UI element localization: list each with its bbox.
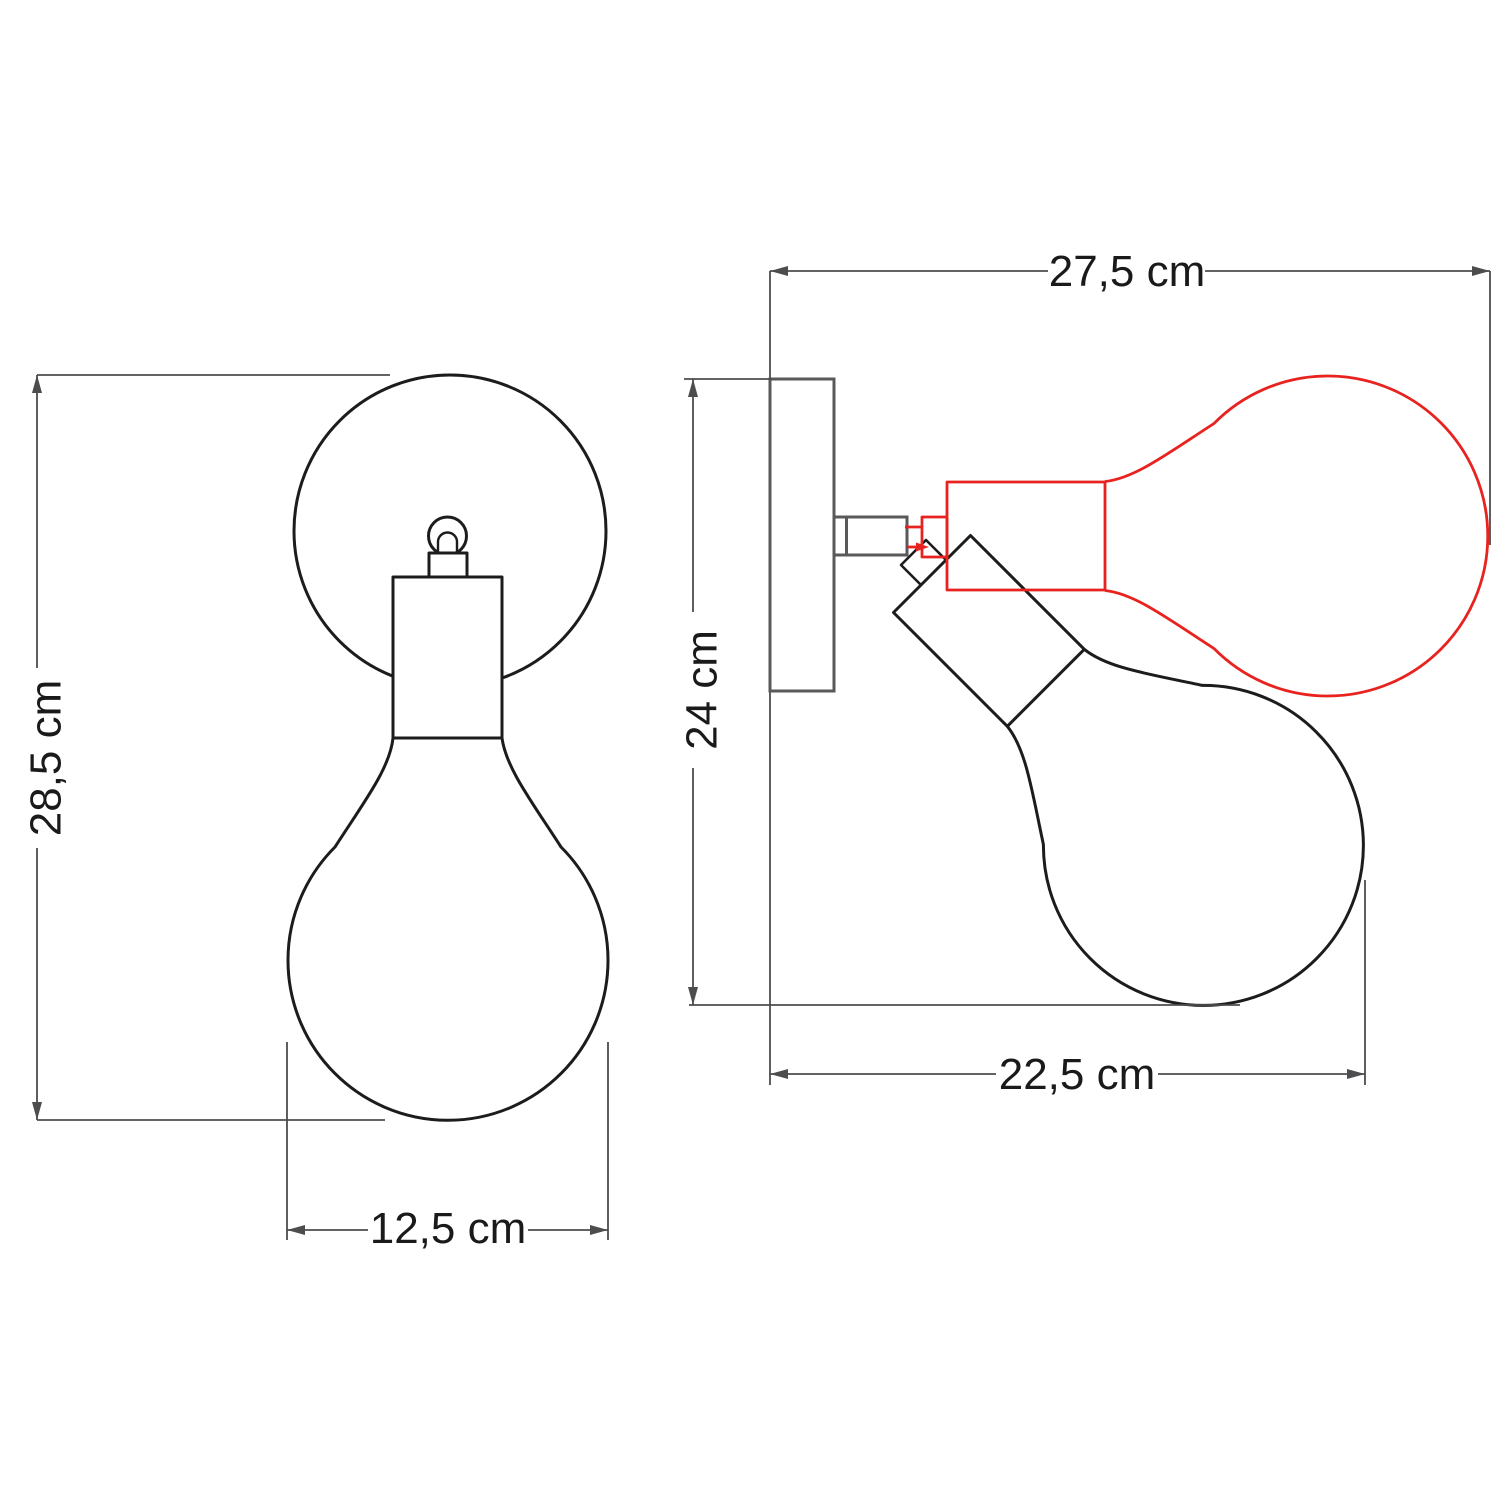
side-view xyxy=(770,271,1488,1085)
side-height-dimension: 24 cm xyxy=(678,379,1240,1005)
width-dimension-label: 12,5 cm xyxy=(370,1204,527,1253)
hanging-ring-icon xyxy=(429,517,467,555)
arrow-up-icon xyxy=(32,375,42,393)
ring-base xyxy=(429,553,467,577)
arrow-left-icon xyxy=(287,1225,305,1235)
side-reach-dimension: 27,5 cm xyxy=(770,247,1490,545)
alt-bulb xyxy=(1105,376,1488,696)
reach-dimension-label: 27,5 cm xyxy=(1049,247,1206,296)
wall-plate-side xyxy=(770,379,834,691)
front-height-dimension: 28,5 cm xyxy=(22,375,390,1120)
arrow-down-icon xyxy=(32,1102,42,1120)
height-dimension-label: 28,5 cm xyxy=(22,680,71,837)
bulb-front xyxy=(288,738,608,1120)
lamp-holder-front xyxy=(393,577,502,738)
arrow-up-icon xyxy=(688,379,698,397)
arrow-left-icon xyxy=(770,266,788,276)
wall-lamp-dimension-drawing: 28,5 cm 12,5 cm xyxy=(0,0,1500,1500)
depth-dimension-label: 22,5 cm xyxy=(999,1050,1156,1099)
mounting-arm xyxy=(834,517,907,555)
arrow-right-icon xyxy=(590,1225,608,1235)
arrow-left-icon xyxy=(770,1069,788,1079)
arrow-down-icon xyxy=(688,987,698,1005)
technical-drawing-canvas: 28,5 cm 12,5 cm xyxy=(0,0,1500,1500)
arrow-right-icon xyxy=(1472,266,1490,276)
arrow-right-icon xyxy=(1347,1069,1365,1079)
bulb-tilted xyxy=(1007,649,1363,1005)
front-view xyxy=(288,375,608,1120)
side-height-dimension-label: 24 cm xyxy=(678,630,727,750)
